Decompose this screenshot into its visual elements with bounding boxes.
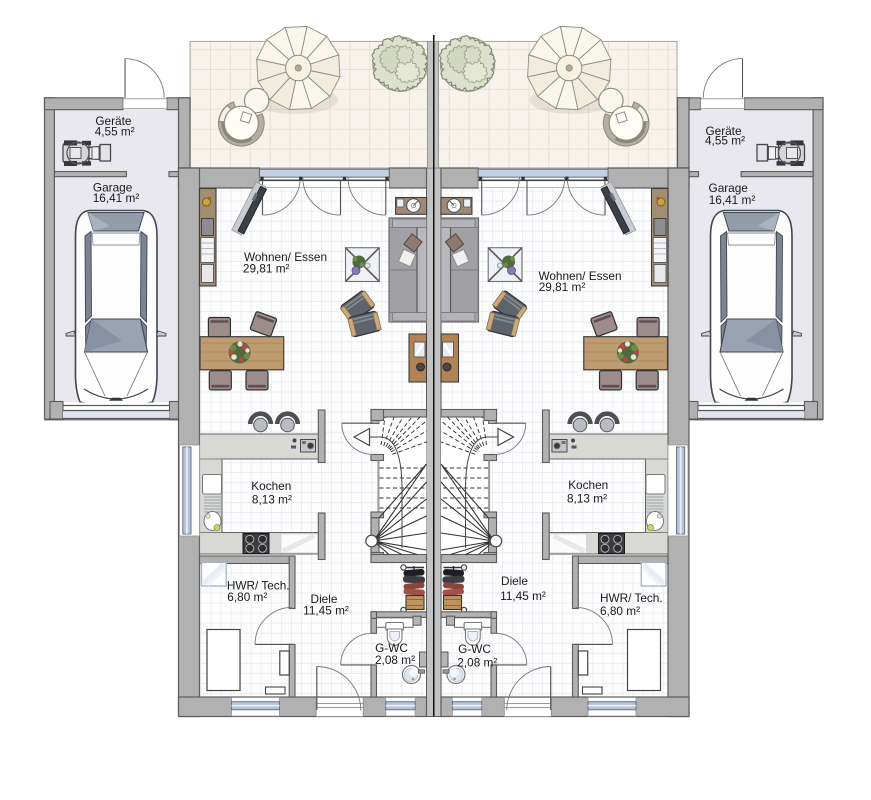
svg-text:6,80 m²: 6,80 m² (227, 590, 267, 604)
svg-text:29,81 m²: 29,81 m² (243, 262, 290, 276)
svg-text:Kochen: Kochen (251, 479, 291, 493)
svg-text:8,13 m²: 8,13 m² (567, 492, 607, 506)
svg-text:4,55 m²: 4,55 m² (95, 125, 135, 139)
svg-text:16,41 m²: 16,41 m² (709, 193, 756, 207)
svg-text:HWR/ Tech.: HWR/ Tech. (600, 591, 663, 605)
svg-text:11,45 m²: 11,45 m² (303, 604, 349, 618)
svg-text:G-WC: G-WC (458, 642, 491, 656)
svg-text:2,08 m²: 2,08 m² (375, 653, 415, 667)
svg-text:6,80 m²: 6,80 m² (600, 604, 640, 618)
svg-text:4,55 m²: 4,55 m² (705, 134, 745, 148)
svg-text:2,08 m²: 2,08 m² (457, 656, 497, 670)
svg-text:29,81 m²: 29,81 m² (539, 280, 586, 294)
svg-text:Diele: Diele (501, 574, 528, 588)
svg-text:11,45 m²: 11,45 m² (500, 589, 546, 603)
svg-text:8,13 m²: 8,13 m² (252, 492, 292, 506)
svg-text:16,41 m²: 16,41 m² (93, 191, 140, 205)
svg-text:Kochen: Kochen (568, 478, 608, 492)
